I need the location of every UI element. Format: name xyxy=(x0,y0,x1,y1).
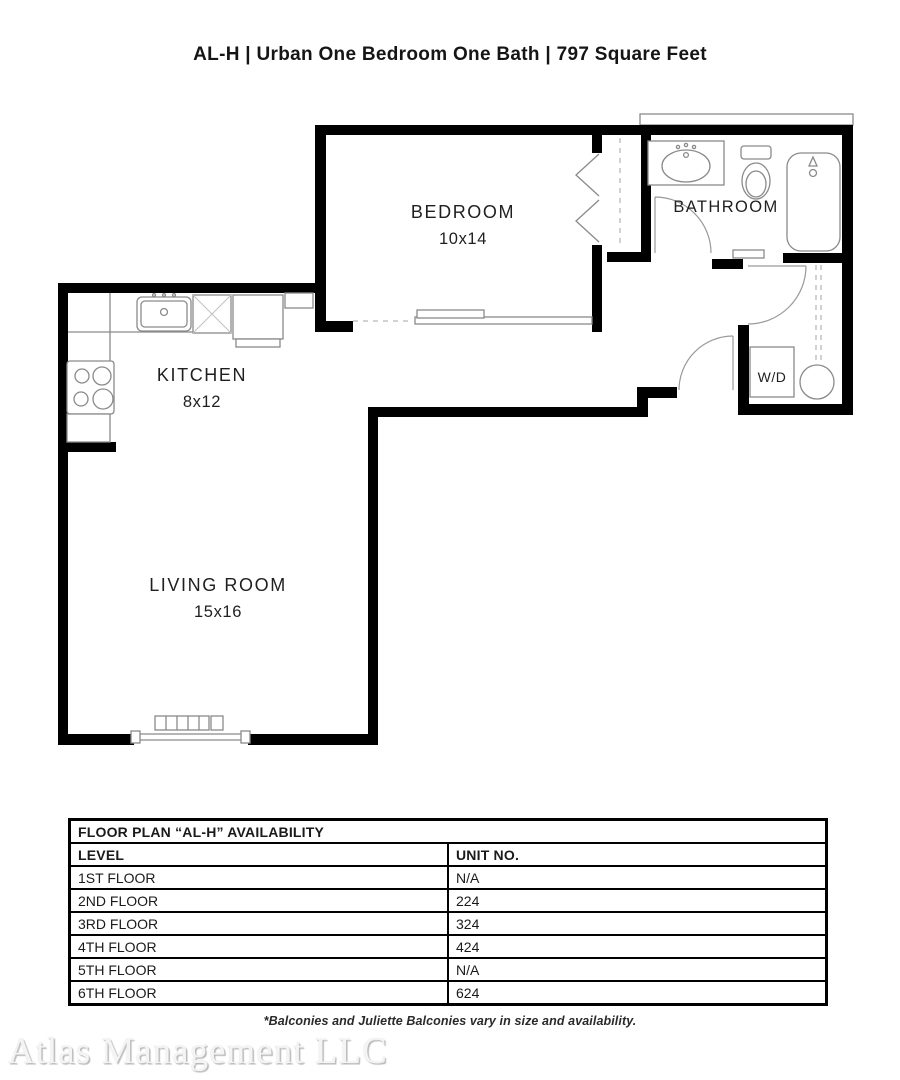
unit-cell: N/A xyxy=(448,958,827,981)
level-cell: 2ND FLOOR xyxy=(70,889,449,912)
washer-dryer-label: W/D xyxy=(758,369,787,385)
laundry-closet-door xyxy=(748,265,821,360)
unit-cell: N/A xyxy=(448,866,827,889)
availability-row: 1ST FLOOR N/A xyxy=(70,866,827,889)
bedroom-label: BEDROOM xyxy=(411,202,515,222)
availability-row: 4TH FLOOR 424 xyxy=(70,935,827,958)
availability-header-row: LEVEL UNIT NO. xyxy=(70,843,827,866)
living-room-window xyxy=(131,731,250,743)
availability-title: FLOOR PLAN “AL-H” AVAILABILITY xyxy=(70,820,827,844)
level-cell: 6TH FLOOR xyxy=(70,981,449,1005)
bedroom-closet-bifold-door xyxy=(576,138,620,248)
availability-row: 5TH FLOOR N/A xyxy=(70,958,827,981)
availability-row: 2ND FLOOR 224 xyxy=(70,889,827,912)
baseboard-heater xyxy=(155,716,223,730)
hall-door xyxy=(679,336,733,390)
level-cell: 3RD FLOOR xyxy=(70,912,449,935)
availability-row: 3RD FLOOR 324 xyxy=(70,912,827,935)
unit-cell: 624 xyxy=(448,981,827,1005)
dishwasher xyxy=(193,295,231,333)
bathroom-sink xyxy=(648,141,724,185)
level-column-header: LEVEL xyxy=(70,843,449,866)
unit-column-header: UNIT NO. xyxy=(448,843,827,866)
living-room-dims: 15x16 xyxy=(194,603,242,621)
level-cell: 5TH FLOOR xyxy=(70,958,449,981)
availability-title-row: FLOOR PLAN “AL-H” AVAILABILITY xyxy=(70,820,827,844)
unit-cell: 224 xyxy=(448,889,827,912)
kitchen-sink xyxy=(137,294,191,331)
bathroom-bulkhead xyxy=(640,114,853,125)
living-room-label: LIVING ROOM xyxy=(149,575,287,595)
watermark: Atlas Management LLC xyxy=(8,1030,388,1073)
refrigerator xyxy=(233,295,283,347)
bedroom-dims: 10x14 xyxy=(439,230,487,248)
bathtub xyxy=(787,153,840,251)
unit-cell: 424 xyxy=(448,935,827,958)
unit-cell: 324 xyxy=(448,912,827,935)
kitchen-label: KITCHEN xyxy=(157,365,247,385)
bedroom-sliding-door xyxy=(353,310,592,324)
footnote: *Balconies and Juliette Balconies vary i… xyxy=(0,1014,900,1028)
stove xyxy=(67,361,114,442)
level-cell: 1ST FLOOR xyxy=(70,866,449,889)
level-cell: 4TH FLOOR xyxy=(70,935,449,958)
floor-plan-drawing: BEDROOM 10x14 BATHROOM KITCHEN 8x12 LIVI… xyxy=(0,0,900,790)
toilet xyxy=(741,146,771,199)
availability-table: FLOOR PLAN “AL-H” AVAILABILITY LEVEL UNI… xyxy=(68,818,828,1006)
availability-row: 6TH FLOOR 624 xyxy=(70,981,827,1005)
bathroom-label: BATHROOM xyxy=(673,198,778,216)
kitchen-dims: 8x12 xyxy=(183,393,221,411)
floor-plan-page: AL-H | Urban One Bedroom One Bath | 797 … xyxy=(0,0,900,1080)
